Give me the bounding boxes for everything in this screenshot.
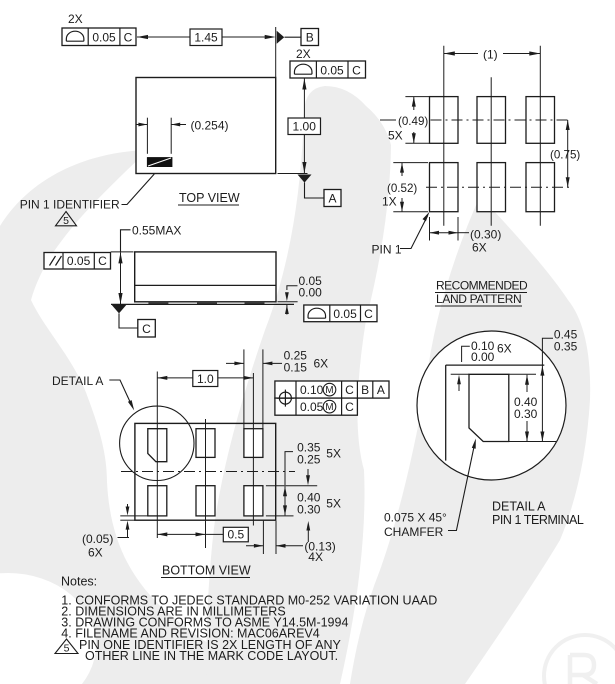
- svg-text:0.10: 0.10: [300, 383, 324, 397]
- svg-text:1X: 1X: [382, 194, 397, 208]
- svg-text:C: C: [345, 383, 354, 397]
- svg-text:BOTTOM VIEW: BOTTOM VIEW: [162, 564, 251, 578]
- svg-text:OTHER LINE IN THE MARK CODE LA: OTHER LINE IN THE MARK CODE LAYOUT.: [85, 649, 338, 663]
- svg-text:DETAIL A: DETAIL A: [492, 500, 546, 514]
- svg-text:5X: 5X: [326, 497, 341, 511]
- svg-text:M: M: [325, 385, 333, 396]
- svg-text:C: C: [364, 307, 373, 321]
- svg-text:0.00: 0.00: [471, 350, 495, 364]
- svg-text:(0.49): (0.49): [398, 115, 428, 128]
- svg-text:PIN 1 IDENTIFIER: PIN 1 IDENTIFIER: [20, 198, 120, 212]
- svg-text:LAND PATTERN: LAND PATTERN: [436, 292, 521, 306]
- svg-text:0.05: 0.05: [67, 254, 91, 268]
- svg-text:0.05: 0.05: [320, 64, 344, 78]
- svg-text:Notes:: Notes:: [61, 575, 97, 589]
- svg-text:2X: 2X: [68, 12, 83, 26]
- svg-text:0.30: 0.30: [514, 407, 538, 421]
- svg-text:TOP VIEW: TOP VIEW: [179, 191, 240, 205]
- svg-text:5: 5: [64, 643, 70, 655]
- svg-text:5X: 5X: [326, 447, 341, 461]
- svg-text:0.25: 0.25: [297, 453, 321, 467]
- svg-text:0.05: 0.05: [333, 307, 357, 321]
- svg-text:5X: 5X: [388, 129, 403, 143]
- svg-text:(0.254): (0.254): [191, 119, 229, 133]
- svg-text:(1): (1): [483, 47, 498, 61]
- svg-text:PIN 1: PIN 1: [372, 243, 402, 257]
- svg-text:DETAIL A: DETAIL A: [52, 374, 103, 388]
- svg-text:6X: 6X: [472, 241, 487, 255]
- svg-text:B: B: [361, 383, 369, 397]
- svg-text:1.0: 1.0: [197, 372, 214, 386]
- svg-text:RECOMMENDED: RECOMMENDED: [436, 279, 528, 293]
- svg-text:0.075 X 45°: 0.075 X 45°: [384, 511, 447, 525]
- svg-text:CHAMFER: CHAMFER: [384, 525, 444, 539]
- svg-text:C: C: [124, 31, 133, 45]
- svg-text:0.35: 0.35: [554, 340, 578, 354]
- svg-text:C: C: [345, 400, 354, 414]
- svg-text:4X: 4X: [308, 550, 323, 564]
- svg-text:1.00: 1.00: [293, 120, 317, 134]
- svg-text:(0.52): (0.52): [387, 182, 417, 195]
- svg-text:6X: 6X: [314, 357, 329, 371]
- svg-text:C: C: [352, 64, 361, 78]
- svg-text:2X: 2X: [296, 47, 311, 61]
- svg-text:0.05: 0.05: [300, 400, 324, 414]
- svg-text:C: C: [98, 254, 107, 268]
- svg-text:0.00: 0.00: [299, 286, 323, 300]
- svg-text:C: C: [142, 322, 151, 336]
- svg-text:(0.05): (0.05): [82, 532, 113, 546]
- svg-text:M: M: [325, 402, 333, 413]
- svg-text:1.45: 1.45: [194, 31, 218, 45]
- svg-text:(0.75): (0.75): [550, 149, 580, 162]
- svg-text:A: A: [377, 383, 385, 397]
- svg-text:0.55MAX: 0.55MAX: [132, 224, 181, 238]
- svg-text:0.30: 0.30: [297, 503, 321, 517]
- svg-text:0.05: 0.05: [92, 31, 116, 45]
- svg-text:0.5: 0.5: [227, 527, 244, 541]
- svg-text:PIN 1 TERMINAL: PIN 1 TERMINAL: [492, 513, 584, 527]
- svg-text:6X: 6X: [88, 546, 103, 560]
- svg-text:A: A: [328, 192, 336, 206]
- svg-text:6X: 6X: [497, 342, 512, 356]
- svg-text:(0.30): (0.30): [470, 228, 501, 242]
- svg-text:5: 5: [63, 215, 69, 227]
- svg-text:B: B: [306, 31, 314, 45]
- svg-text:0.15: 0.15: [284, 361, 308, 375]
